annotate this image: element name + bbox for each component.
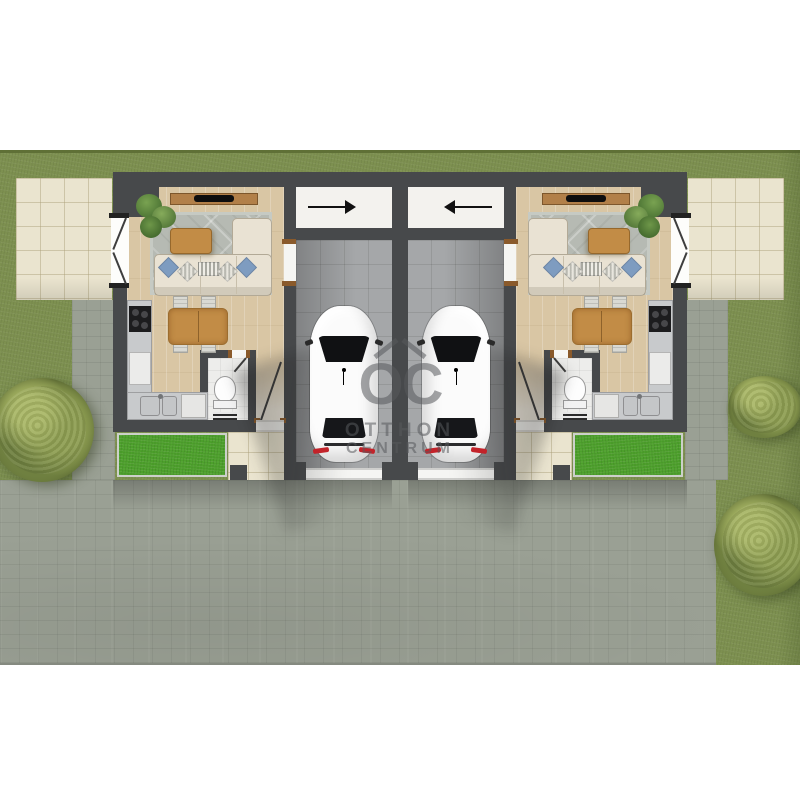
door-jamb — [502, 281, 518, 286]
door-jamb — [228, 350, 232, 358]
garage-partition-wall — [284, 187, 296, 243]
entry-arrow — [308, 206, 346, 208]
faucet — [158, 394, 163, 399]
dining-table — [572, 308, 632, 345]
outer-wall-upper — [673, 187, 687, 213]
toilet — [214, 376, 236, 402]
door-jamb — [502, 239, 518, 244]
pillow — [198, 262, 220, 276]
faucet — [637, 394, 642, 399]
entry-arrow-head — [345, 200, 356, 214]
burner — [141, 322, 148, 329]
fridge — [649, 352, 671, 385]
burner — [141, 311, 148, 318]
burner — [652, 322, 659, 329]
toilet-tank — [563, 400, 587, 409]
kitchen-sink — [140, 396, 160, 416]
wall-stub — [553, 465, 570, 480]
dishwasher — [181, 394, 206, 418]
duplex-floor-plan: OC OTTHON CENTRUM — [0, 0, 800, 800]
garage-north-wall — [408, 228, 504, 240]
bath-mat — [563, 412, 587, 420]
entry-arrow-head — [444, 200, 455, 214]
door-jamb — [246, 350, 250, 358]
sofa-seam — [236, 256, 237, 294]
kitchen-sink — [623, 396, 638, 416]
south-wall — [544, 420, 687, 432]
watermark-line2: CENTRUM — [320, 440, 480, 458]
entry-arrow — [454, 206, 492, 208]
fridge — [129, 352, 151, 385]
kitchen-sink — [162, 396, 177, 416]
cooktop — [649, 306, 671, 332]
cooktop — [129, 306, 151, 332]
kitchen-sink — [640, 396, 660, 416]
watermark-line1: OTTHON — [320, 420, 480, 442]
burner — [652, 311, 659, 318]
garage-door-opening — [504, 243, 516, 282]
wc-door-opening — [554, 350, 568, 358]
garage-door-opening — [284, 243, 296, 282]
burner — [661, 309, 668, 316]
burner — [661, 320, 668, 327]
potted-plant — [134, 192, 178, 240]
side-path — [685, 300, 728, 480]
watermark-logo: OC — [320, 356, 480, 414]
burner — [132, 320, 139, 327]
dining-table — [168, 308, 228, 345]
french-door-sill — [671, 213, 689, 288]
front-lawn-patch — [573, 433, 683, 477]
south-wall — [113, 420, 256, 432]
burner — [132, 309, 139, 316]
outer-wall-upper — [113, 187, 127, 213]
toilet-tank — [213, 400, 237, 409]
outer-wall-lower — [673, 288, 687, 432]
outer-wall-lower — [113, 288, 127, 432]
sofa-seam — [563, 256, 564, 294]
garage-north-wall — [296, 228, 392, 240]
dishwasher — [594, 394, 619, 418]
wall-stub — [230, 465, 247, 480]
watermark: OC OTTHON CENTRUM — [320, 334, 480, 464]
garage-partition-wall — [504, 187, 516, 243]
toilet — [564, 376, 586, 402]
terrace — [688, 178, 784, 300]
potted-plant — [622, 192, 666, 240]
tv — [566, 195, 606, 202]
terrace — [16, 178, 112, 300]
pillow — [580, 262, 602, 276]
front-lawn-patch — [117, 433, 227, 477]
garage-door-jamb — [408, 462, 418, 480]
garage-door-jamb — [382, 462, 392, 480]
door-jamb — [568, 350, 572, 358]
french-door-sill — [111, 213, 129, 288]
bath-mat — [213, 412, 237, 420]
bush — [726, 376, 800, 438]
tv — [194, 195, 234, 202]
